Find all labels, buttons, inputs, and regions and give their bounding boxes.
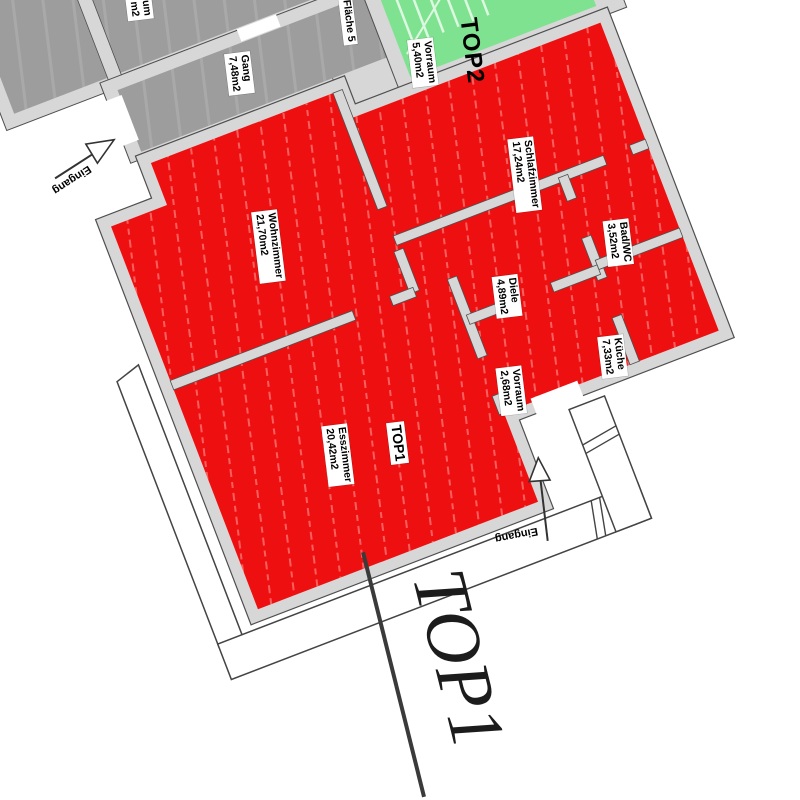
room-label-diele: Diele 4,89m2 (492, 274, 522, 318)
floor-plan-canvas: um m2 Gang 7,48m2 Fläche 5 TOP2 Vorraum … (0, 0, 800, 800)
room-label-gang: Gang 7,48m2 (224, 51, 254, 95)
room-label-bad-wc: Bad/WC 3,52m2 (603, 218, 634, 267)
arrowhead-icon (86, 134, 120, 165)
cutoff-room-label-line2: m2 (127, 1, 141, 18)
unit-label-text: TOP1 (388, 424, 408, 462)
room-label-kueche: Küche 7,33m2 (598, 334, 628, 378)
cutoff-room-label: um m2 (126, 0, 154, 21)
